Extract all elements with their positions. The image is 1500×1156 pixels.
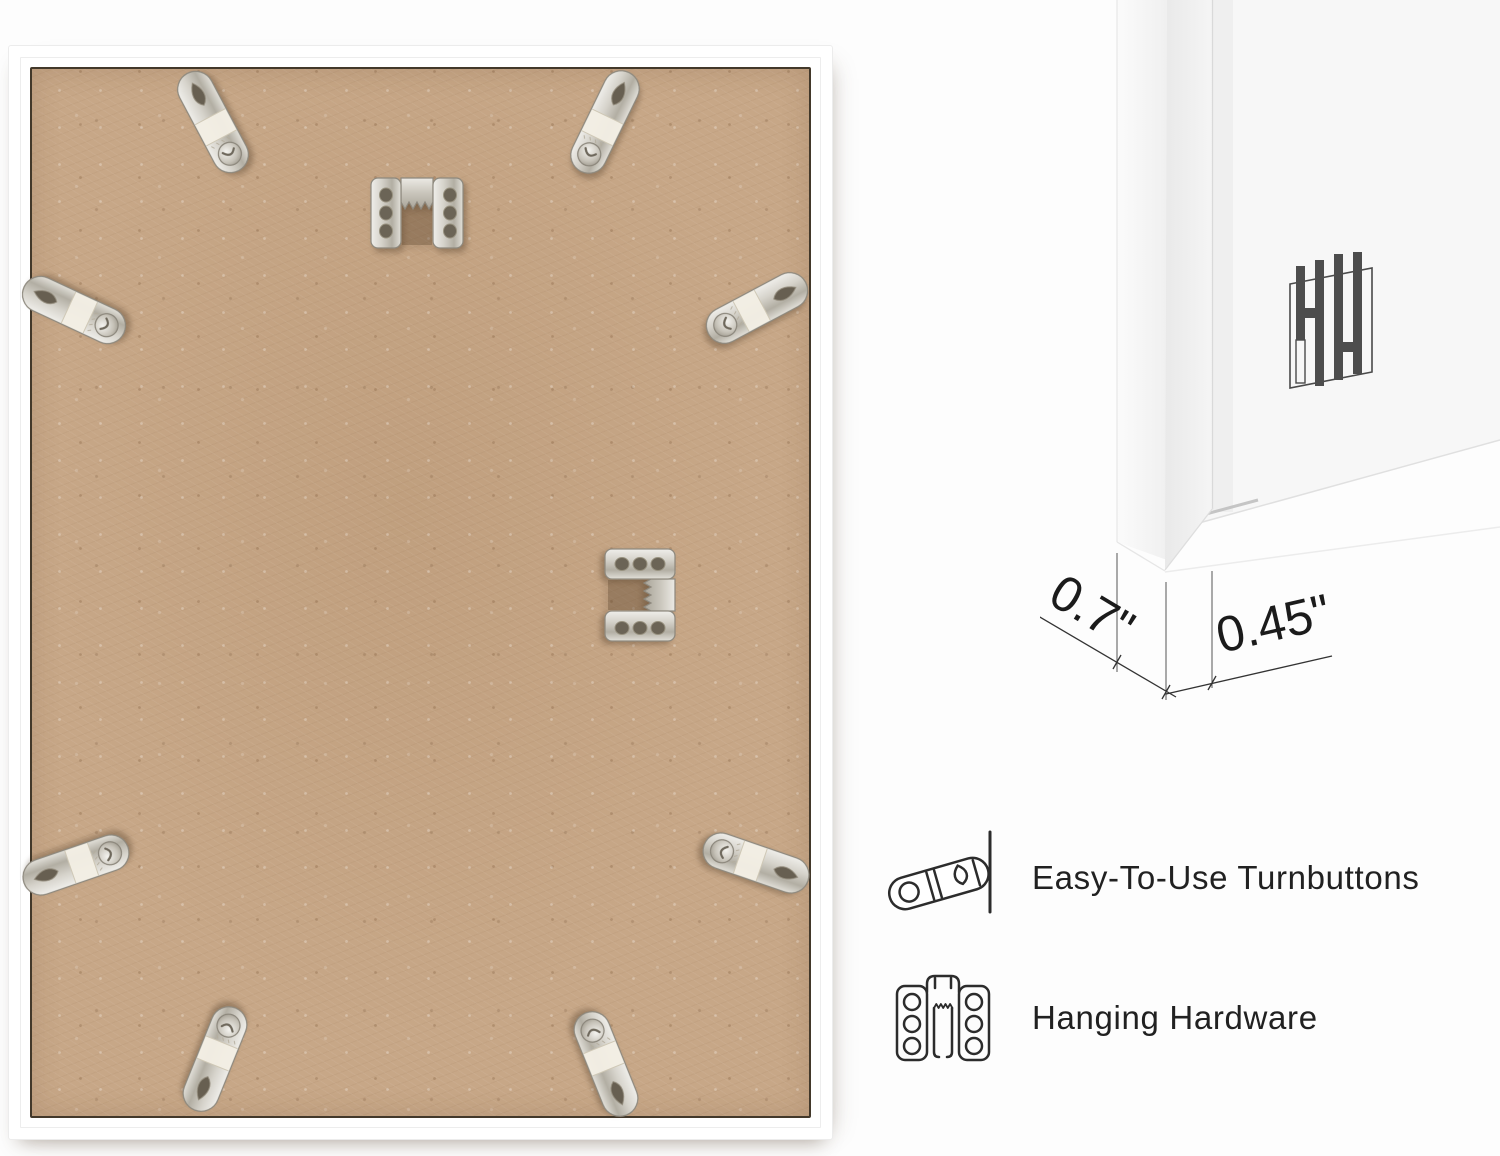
sawtooth-hanger-middle	[602, 547, 678, 643]
turnbutton-icon	[882, 824, 1002, 916]
logo-bar	[1315, 260, 1324, 386]
dimension-label-face: 0.45"	[1211, 583, 1336, 663]
dim-line-face	[1166, 656, 1332, 694]
frame-side-face	[1117, 0, 1167, 560]
logo-bar	[1353, 252, 1362, 374]
frame-interior	[1199, 0, 1500, 523]
sawtooth-hanger-icon	[893, 972, 993, 1062]
feature-label-turnbuttons: Easy-To-Use Turnbuttons	[1032, 861, 1420, 894]
sawtooth-hanger-top	[369, 175, 465, 251]
feature-label-hanging-hardware: Hanging Hardware	[1032, 1001, 1318, 1034]
frame-front-face	[1165, 0, 1213, 570]
product-infographic: { "photo": { "subject": "Back of white p…	[0, 0, 1500, 1156]
interior-shadow	[1213, 0, 1233, 512]
logo-bar	[1296, 266, 1305, 340]
logo-bar	[1334, 254, 1343, 380]
logo-crossbar	[1343, 342, 1353, 352]
logo-crossbar	[1305, 308, 1315, 318]
corner-detail-photo: 0.7" 0.45"	[1040, 0, 1500, 720]
frame-back-photo	[8, 45, 833, 1140]
dimension-label-side: 0.7"	[1040, 563, 1144, 656]
